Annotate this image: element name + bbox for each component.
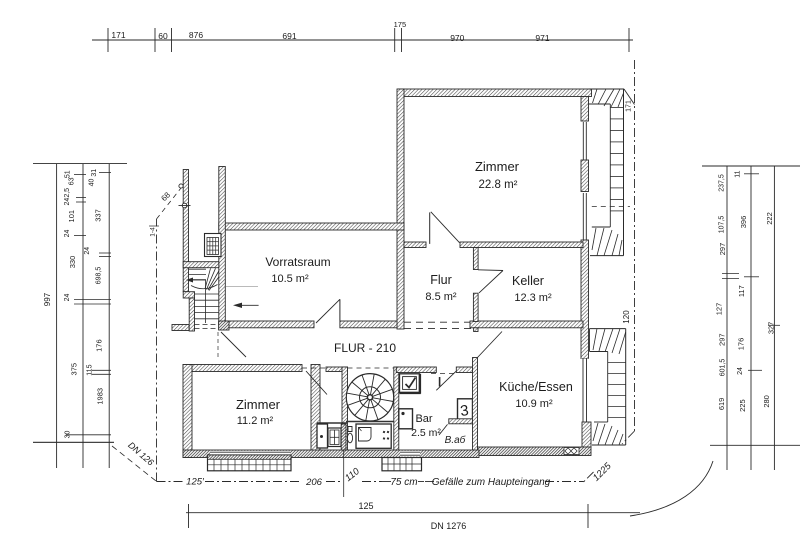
- svg-text:601,5: 601,5: [720, 359, 727, 377]
- svg-text:120: 120: [622, 310, 631, 324]
- svg-text:222: 222: [765, 212, 774, 225]
- svg-text:375: 375: [70, 363, 79, 376]
- svg-text:11.2 m²: 11.2 m²: [237, 415, 274, 427]
- svg-text:237,5: 237,5: [719, 174, 726, 192]
- svg-text:619: 619: [717, 398, 726, 411]
- svg-text:171: 171: [626, 100, 633, 112]
- svg-text:Keller: Keller: [512, 274, 544, 288]
- svg-text:2.5 m²: 2.5 m²: [411, 427, 441, 439]
- svg-text:970: 970: [450, 33, 464, 43]
- svg-text:12.3 m²: 12.3 m²: [514, 292, 552, 304]
- svg-text:Bar: Bar: [415, 413, 432, 425]
- svg-text:997: 997: [43, 292, 52, 306]
- svg-text:Küche/Essen: Küche/Essen: [499, 380, 573, 394]
- svg-text:175: 175: [394, 20, 407, 29]
- svg-text:10.5 m²: 10.5 m²: [271, 273, 309, 285]
- svg-text:31: 31: [91, 169, 98, 177]
- svg-text:1983: 1983: [96, 388, 105, 405]
- svg-text:B.aб: B.aб: [445, 434, 466, 446]
- svg-text:330: 330: [68, 256, 77, 269]
- svg-text:22.8 m²: 22.8 m²: [479, 179, 518, 191]
- svg-text:Flur: Flur: [430, 273, 452, 287]
- svg-text:876: 876: [189, 30, 203, 40]
- svg-text:1-4: 1-4: [150, 227, 157, 237]
- svg-text:297: 297: [718, 333, 727, 346]
- svg-text:63: 63: [69, 177, 76, 185]
- svg-text:242,5: 242,5: [64, 188, 71, 206]
- svg-text:24: 24: [737, 367, 744, 375]
- svg-text:337: 337: [94, 209, 103, 222]
- svg-text:225: 225: [738, 399, 747, 412]
- svg-text:698,5: 698,5: [96, 267, 103, 285]
- svg-text:40: 40: [89, 179, 96, 187]
- svg-text:107,5: 107,5: [719, 216, 726, 234]
- svg-text:171: 171: [111, 30, 125, 40]
- svg-text:125′: 125′: [186, 477, 205, 488]
- svg-text:327: 327: [767, 322, 776, 335]
- svg-text:115: 115: [87, 364, 94, 375]
- svg-text:10.9 m²: 10.9 m²: [515, 398, 553, 410]
- svg-text:FLUR - 210: FLUR - 210: [334, 341, 396, 355]
- svg-text:30: 30: [65, 431, 72, 439]
- svg-text:125: 125: [358, 501, 373, 511]
- svg-text:8.5 m²: 8.5 m²: [425, 291, 457, 303]
- svg-text:206: 206: [305, 477, 323, 488]
- svg-text:11: 11: [735, 170, 742, 177]
- svg-text:691: 691: [282, 31, 296, 41]
- svg-text:24: 24: [64, 230, 71, 238]
- svg-text:396: 396: [739, 216, 748, 229]
- svg-text:Zimmer: Zimmer: [236, 397, 281, 412]
- svg-text:101: 101: [67, 210, 76, 223]
- svg-text:280: 280: [762, 395, 771, 408]
- svg-text:24: 24: [84, 247, 91, 255]
- svg-text:Zimmer: Zimmer: [475, 159, 520, 174]
- svg-text:60: 60: [158, 31, 168, 41]
- svg-text:Gefälle zum Haupteingang: Gefälle zum Haupteingang: [432, 477, 551, 488]
- svg-text:24: 24: [64, 294, 71, 302]
- svg-text:176: 176: [737, 338, 746, 351]
- svg-text:75 cm: 75 cm: [390, 477, 417, 488]
- svg-text:297: 297: [718, 243, 727, 256]
- svg-text:DN 1276: DN 1276: [431, 521, 467, 531]
- svg-text:51: 51: [65, 170, 72, 178]
- svg-text:176: 176: [95, 339, 104, 352]
- svg-text:127: 127: [715, 303, 724, 316]
- svg-text:117: 117: [737, 285, 746, 297]
- svg-text:971: 971: [535, 33, 549, 43]
- svg-text:Vorratsraum: Vorratsraum: [265, 255, 330, 269]
